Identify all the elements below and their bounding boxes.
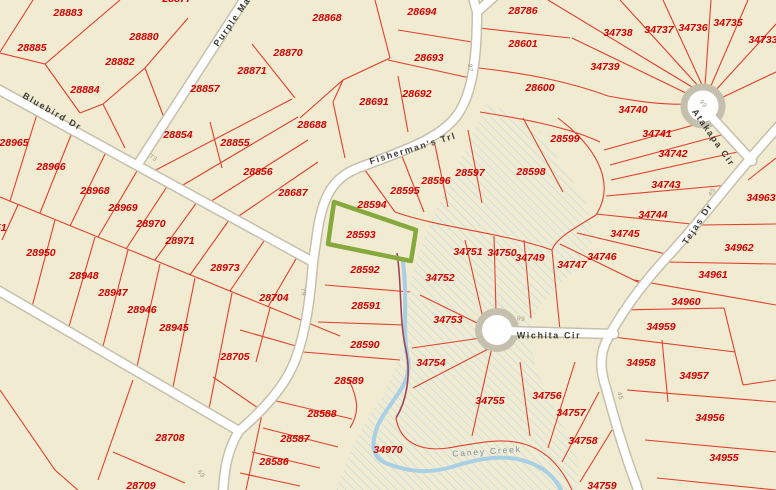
road-number-label: 97 [466, 64, 474, 73]
parcel-number-label: 34957 [679, 370, 709, 382]
parcel-number-label: 28965 [0, 137, 29, 149]
road-number-label: 79 [299, 287, 307, 296]
parcel-number-label: 28882 [104, 56, 134, 68]
parcel-number-label: 28854 [162, 129, 192, 141]
parcel-map-viewport[interactable]: 2887728883288852888028882288842886828870… [0, 0, 776, 490]
parcel-number-label: 28945 [158, 322, 188, 334]
parcel-number-label: 34735 [713, 17, 742, 29]
parcel-number-label: 34752 [425, 272, 454, 284]
parcel-number-label: 34747 [557, 259, 587, 271]
parcel-number-label: 28868 [311, 12, 341, 24]
parcel-number-label: 28946 [126, 304, 156, 316]
parcel-number-label: 34754 [416, 357, 445, 369]
parcel-number-label: 34758 [568, 435, 597, 447]
street-name-label: Wichita Cir [517, 330, 582, 340]
parcel-number-label: 34962 [724, 242, 753, 254]
parcel-number-label: 34750 [487, 247, 516, 259]
parcel-number-label: 34970 [373, 444, 402, 456]
parcel-number-label: 28880 [128, 31, 158, 43]
wichita-cir-bulb-surface [482, 315, 512, 345]
parcel-number-label: 28947 [97, 287, 128, 299]
parcel-number-label: 28593 [345, 229, 375, 241]
parcel-number-label: 28692 [401, 88, 431, 100]
parcel-number-label: 34956 [695, 412, 724, 424]
parcel-number-label: 28973 [209, 262, 239, 274]
parcel-number-label: 34742 [658, 148, 687, 160]
parcel-number-label: 28592 [349, 264, 379, 276]
parcel-number-label: 28600 [524, 82, 554, 94]
parcel-number-label: 34743 [651, 179, 680, 191]
parcel-number-label: 34757 [556, 407, 586, 419]
parcel-number-label: 28883 [52, 7, 82, 19]
parcel-number-label: 28857 [189, 83, 220, 95]
parcel-number-label: 34733 [748, 34, 776, 46]
parcel-number-label: 34749 [515, 252, 544, 264]
parcel-number-label: 28594 [356, 199, 386, 211]
parcel-number-label: 28970 [135, 218, 165, 230]
parcel-number-label: 34744 [638, 209, 667, 221]
road-number-label: 99 [516, 315, 525, 323]
parcel-number-label: 28586 [258, 456, 288, 468]
parcel-number-label: 28951 [0, 222, 7, 234]
parcel-number-label: 28587 [279, 433, 310, 445]
parcel-number-label: 28704 [258, 292, 288, 304]
parcel-number-label: 28950 [25, 247, 55, 259]
parcel-number-label: 34746 [587, 251, 616, 263]
parcel-number-label: 28705 [219, 351, 249, 363]
parcel-number-label: 28595 [389, 185, 419, 197]
parcel-number-label: 28709 [125, 480, 155, 490]
parcel-number-label: 34751 [453, 246, 482, 258]
parcel-number-label: 28966 [35, 161, 65, 173]
parcel-number-label: 28597 [454, 167, 485, 179]
parcel-number-label: 28948 [68, 270, 98, 282]
parcel-number-label: 34958 [626, 357, 655, 369]
parcel-number-label: 34753 [433, 314, 462, 326]
parcel-number-label: 34755 [475, 395, 504, 407]
parcel-number-label: 28708 [154, 432, 184, 444]
parcel-number-label: 28971 [164, 235, 194, 247]
parcel-number-label: 28870 [272, 47, 302, 59]
parcel-number-label: 28590 [349, 339, 379, 351]
parcel-number-label: 28884 [69, 84, 99, 96]
parcel-number-label: 28601 [507, 38, 537, 50]
parcel-number-label: 28588 [306, 408, 336, 420]
parcel-number-label: 28598 [515, 166, 545, 178]
parcel-number-label: 28589 [333, 375, 363, 387]
parcel-number-label: 28599 [549, 133, 579, 145]
parcel-number-label: 34759 [587, 480, 616, 490]
parcel-number-label: 28591 [350, 300, 380, 312]
parcel-number-label: 34960 [671, 296, 700, 308]
parcel-number-label: 34737 [644, 24, 674, 36]
parcel-number-label: 28969 [107, 202, 137, 214]
parcel-number-label: 28694 [406, 6, 436, 18]
parcel-number-label: 34745 [610, 228, 639, 240]
parcel-number-label: 28877 [161, 0, 192, 5]
parcel-number-label: 28596 [420, 175, 450, 187]
parcel-number-label: 28786 [507, 5, 537, 17]
parcel-number-label: 34739 [590, 61, 619, 73]
parcel-number-label: 34963 [746, 192, 775, 204]
parcel-number-label: 28688 [296, 119, 326, 131]
parcel-number-label: 34740 [618, 104, 647, 116]
parcel-number-label: 34959 [646, 321, 675, 333]
parcel-number-label: 28856 [242, 166, 272, 178]
parcel-number-label: 34736 [678, 22, 707, 34]
parcel-number-label: 34741 [642, 128, 671, 140]
parcel-number-label: 34955 [709, 452, 738, 464]
parcel-number-label: 28693 [413, 52, 443, 64]
parcel-map: 2887728883288852888028882288842886828870… [0, 0, 776, 490]
parcel-number-label: 28885 [16, 42, 46, 54]
parcel-number-label: 28687 [277, 187, 308, 199]
parcel-number-label: 28871 [236, 65, 266, 77]
parcel-number-label: 28691 [358, 96, 388, 108]
parcel-number-label: 34961 [698, 269, 727, 281]
parcel-number-label: 28855 [219, 137, 249, 149]
parcel-number-label: 34738 [603, 27, 632, 39]
parcel-number-label: 34756 [532, 390, 561, 402]
parcel-number-label: 28968 [79, 185, 109, 197]
